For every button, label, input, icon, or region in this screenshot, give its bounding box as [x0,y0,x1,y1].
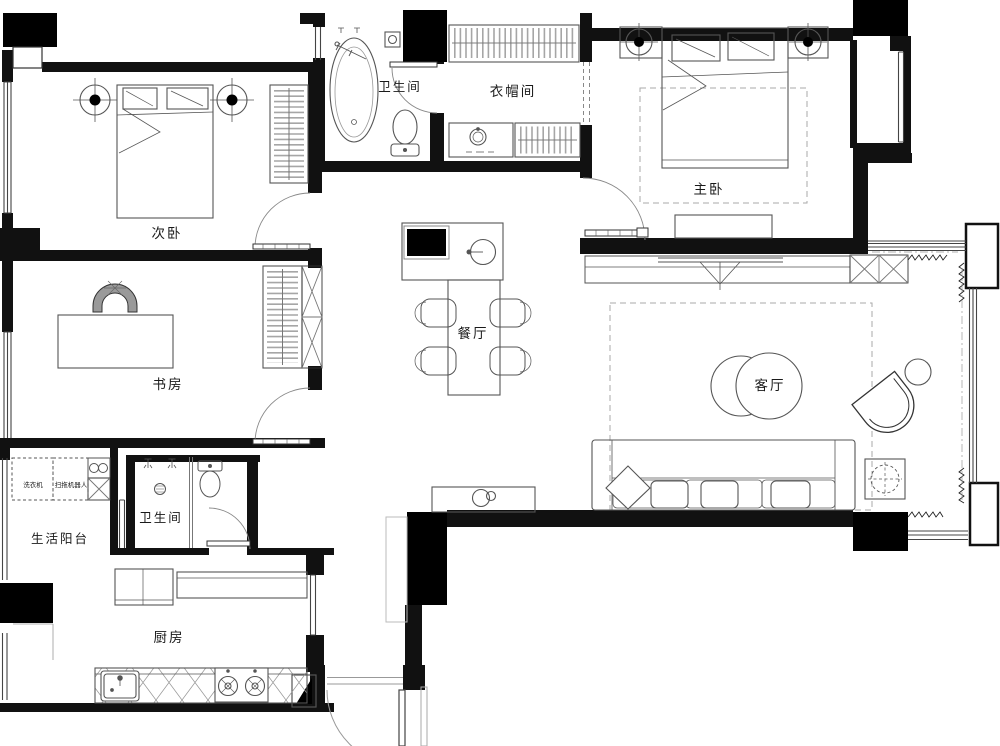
window-bathroom-upper [316,27,321,60]
console-cabinet [432,487,535,512]
door-bathroom-lower [207,508,250,549]
label-dining-room: 餐厅 [458,326,489,341]
pillar [970,483,998,545]
bed [662,28,788,168]
column [403,10,447,62]
laundry-sink [88,458,110,478]
label-kitchen: 厨房 [154,630,185,645]
wardrobe [263,266,302,368]
hanging-closet-top [449,25,579,62]
floor-drain [155,484,166,495]
door-secondary-bedroom [253,193,310,249]
stove [215,668,268,702]
label-study: 书房 [153,377,184,392]
side-table [905,359,931,385]
pillar [966,224,998,288]
label-cloakroom: 衣帽间 [490,84,537,99]
column [407,512,447,605]
bathroom-lower-fixtures [144,457,222,548]
window-living-right [970,288,977,483]
secondary-bedroom-furniture [73,78,308,218]
label-robot-vacuum: 扫拖机器人 [55,480,88,489]
door-study [253,388,310,444]
duct-box [13,47,42,68]
label-secondary-bedroom: 次卧 [152,226,183,241]
balcony-appliances [12,458,110,500]
toilet [198,461,222,497]
island [402,223,503,280]
entry-duct [386,517,407,622]
column [853,512,908,551]
hatched-cabinet [302,266,322,368]
tv [658,258,783,290]
hanging-rack-bottom [515,123,580,157]
pillow [701,481,738,508]
window-living-top [868,241,966,251]
pillow [651,481,688,508]
tv-wall [585,255,908,290]
vanity [449,123,513,157]
window-living-bottom [908,531,968,540]
kitchen-sink [101,671,139,701]
armchair [852,371,925,443]
label-service-balcony: 生活阳台 [31,531,89,546]
label-master-bedroom: 主卧 [694,182,725,197]
fridge-cabinet [115,569,173,605]
floor-plan-svg: 次卧 书房 生活阳台 洗衣机 扫拖机器人 卫生间 厨房 卫生间 衣帽间 主卧 餐… [0,0,1000,746]
floor-plan-canvas: 次卧 书房 生活阳台 洗衣机 扫拖机器人 卫生间 厨房 卫生间 衣帽间 主卧 餐… [0,0,1000,746]
master-bedroom-furniture [620,23,828,238]
sofa [592,440,855,510]
shower-head [354,28,360,33]
hatched-cabinet [850,255,908,283]
rug [610,303,872,510]
plant-table [865,459,905,499]
dining-furniture [402,223,531,395]
window-balcony-lower [3,633,8,700]
wall-cabinet [177,572,307,598]
column [0,583,53,623]
desk [58,315,173,368]
window-balcony-bath [120,500,125,548]
window-secondary-bedroom [4,82,11,213]
washing-machine-box [12,458,53,500]
pillow [771,481,810,508]
window-master-niche [899,52,904,142]
glass-partition [190,457,193,548]
desk-chair [93,281,137,312]
label-washing-machine: 洗衣机 [23,480,43,489]
wardrobe [270,85,308,183]
toilet [391,110,419,156]
label-bathroom-lower: 卫生间 [139,511,183,525]
bathtub [330,38,378,142]
window-study [4,332,11,438]
counter-edge [13,624,53,660]
ceiling-light [210,78,254,122]
wall-niche [385,32,400,47]
door-master-bedroom [583,178,648,240]
label-living-room: 客厅 [755,377,786,393]
tv-cabinet [585,256,850,283]
window-kitchen [311,575,316,635]
window-balcony-upper [3,458,8,580]
dresser [675,215,772,238]
ceiling-light [73,78,117,122]
label-bathroom-upper: 卫生间 [378,80,422,94]
shower-head [338,28,344,33]
bed [117,85,213,218]
window-pillars [966,224,998,545]
study-furniture [58,266,322,368]
robot-box [53,458,88,500]
entry-furniture [432,487,535,512]
column [3,13,57,47]
hatched-box [88,478,110,500]
opening-cloakroom-master [584,62,590,125]
column [853,0,908,36]
